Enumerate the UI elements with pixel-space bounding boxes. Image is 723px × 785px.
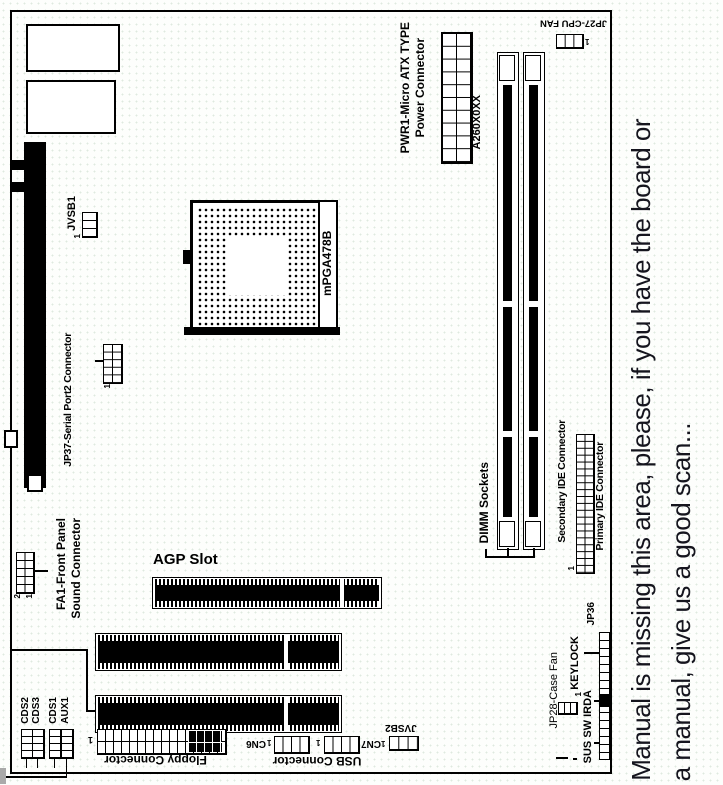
aux1-icon bbox=[61, 729, 74, 759]
cds-leader-line bbox=[26, 757, 27, 768]
dimm-key-notch bbox=[529, 431, 538, 437]
jp37-header-icon bbox=[103, 344, 123, 384]
scan-smudge bbox=[0, 768, 6, 784]
fa1-label-line1: FA1-Front Panel bbox=[55, 518, 69, 610]
usb-header-icon-2 bbox=[324, 736, 360, 754]
pci-leader-line bbox=[86, 649, 88, 712]
usb-header-icon-1 bbox=[274, 736, 310, 754]
dimm-clip bbox=[499, 521, 515, 547]
cds3-icon bbox=[32, 729, 45, 759]
pwr1-connector-icon bbox=[441, 32, 473, 164]
cn6-label: CN6 bbox=[246, 738, 266, 749]
pci-slot-1 bbox=[95, 633, 342, 671]
jvsb1-pin1-marker: 1 bbox=[73, 234, 82, 238]
cn7-label: CN7 bbox=[361, 738, 381, 749]
usb-pin1-marker: 1 bbox=[316, 737, 320, 746]
pwr1-type-label: PWR1-Micro ATX TYPE bbox=[399, 22, 413, 153]
agp-slot-label: AGP Slot bbox=[153, 551, 218, 568]
cds-leader-line bbox=[37, 757, 38, 768]
slot-key-notch bbox=[284, 697, 288, 731]
scanned-manual-page: JVSB1 1 JP37-Serial Port2 Connector 1 mP… bbox=[0, 0, 723, 785]
jp37-pin1-marker: 1 bbox=[103, 384, 112, 388]
dimm-leader-line bbox=[485, 556, 535, 558]
dimm-key-notch bbox=[503, 431, 512, 437]
dash-mark bbox=[556, 757, 568, 759]
edge-notch bbox=[4, 430, 18, 448]
aux-leader-line bbox=[4, 776, 67, 778]
slot-bar bbox=[155, 585, 379, 601]
usb-pin1-marker: 1 bbox=[267, 737, 271, 746]
pci-slot-2 bbox=[95, 695, 342, 733]
cpu-socket-center-hole bbox=[226, 238, 288, 295]
jvsb2-jumper-icon bbox=[389, 736, 419, 751]
rear-port-bottom bbox=[26, 80, 116, 134]
edge-tab bbox=[10, 160, 24, 170]
front-panel-strip-block bbox=[599, 694, 609, 707]
rear-port-top bbox=[26, 24, 120, 72]
cds2-label: CDS2 bbox=[20, 697, 32, 724]
slot-bar bbox=[98, 703, 339, 725]
rear-bar-notch bbox=[27, 474, 43, 492]
jvsb2-label: JVSB2 bbox=[385, 722, 417, 733]
sus-sw-irda-label: SUS SW IRDA bbox=[582, 690, 595, 763]
dimm-leader-line bbox=[533, 548, 535, 558]
jvsb1-label: JVSB1 bbox=[66, 196, 79, 231]
cds-leader-line bbox=[54, 757, 55, 768]
jp27-fan-icon bbox=[556, 34, 584, 49]
pwr1-name-label: Power Connector bbox=[414, 38, 428, 137]
jvsb1-jumper-icon bbox=[82, 212, 98, 238]
ide-header-icon bbox=[576, 434, 595, 574]
dimm-slot-1 bbox=[497, 52, 519, 550]
rear-connector-bar bbox=[24, 142, 46, 488]
jp36-label: JP36 bbox=[586, 602, 598, 625]
cds3-label: CDS3 bbox=[31, 697, 43, 724]
slot-teeth bbox=[155, 601, 379, 607]
missing-manual-note-line2: a manual, give us a good scan... bbox=[666, 423, 697, 781]
jp28-case-fan-label: JP28-Case Fan bbox=[548, 652, 561, 728]
jp37-label: JP37-Serial Port2 Connector bbox=[62, 333, 74, 467]
fa1-label-line2: Sound Connector bbox=[70, 518, 84, 619]
cpu-socket bbox=[190, 200, 324, 333]
aux-leader-line bbox=[66, 757, 67, 777]
fa1-leader-line bbox=[33, 570, 48, 572]
dimm-key-notch bbox=[529, 301, 538, 307]
primary-ide-label: Primary IDE Connector bbox=[594, 442, 606, 551]
agp-slot bbox=[152, 577, 382, 609]
slot-key-notch bbox=[284, 635, 288, 669]
jp27-cpu-fan-label: JP27-CPU FAN bbox=[543, 17, 607, 27]
jp27-pin1-marker: 1 bbox=[585, 36, 589, 45]
floppy-header-dark-cells bbox=[188, 730, 222, 752]
dimm-slot-2 bbox=[523, 52, 545, 550]
keylock-label: KEYLOCK bbox=[569, 636, 582, 690]
secondary-ide-label: Secondary IDE Connector bbox=[556, 420, 568, 543]
cpu-socket-side-tab bbox=[183, 250, 191, 264]
slot-key-notch bbox=[340, 579, 344, 607]
dimm-clip bbox=[525, 521, 541, 547]
missing-manual-note-line1: Manual is missing this area, please, if … bbox=[626, 119, 657, 781]
pci-leader-line bbox=[12, 649, 86, 651]
floppy-label: Floppy Connector bbox=[98, 753, 213, 766]
dimm-sockets-label: DIMM Sockets bbox=[478, 462, 492, 543]
usb-connector-label: USB Connector bbox=[272, 754, 362, 767]
edge-tab bbox=[10, 182, 24, 192]
keylock-leader-line bbox=[584, 652, 600, 654]
fa1-pin2-marker: 2 bbox=[13, 594, 22, 598]
jvsb2-pin1-marker: 1 bbox=[381, 738, 385, 747]
dimm-leader-line bbox=[507, 548, 509, 558]
jp37-leader-line bbox=[95, 360, 103, 362]
ide-pin1-marker: 1 bbox=[567, 566, 576, 570]
fa1-header-icon bbox=[16, 552, 35, 594]
cpu-socket-lever-bar bbox=[184, 327, 340, 335]
slot-teeth bbox=[98, 663, 339, 669]
fa1-pin1-marker: 1 bbox=[25, 594, 34, 598]
pci-leader-line bbox=[86, 710, 95, 712]
cpu-socket-label: mPGA478B bbox=[321, 202, 333, 325]
pwr1-part-number: A260X0XX bbox=[471, 95, 484, 149]
aux1-label: AUX1 bbox=[60, 697, 72, 724]
cds1-label: CDS1 bbox=[48, 697, 60, 724]
slot-bar bbox=[98, 641, 339, 663]
cpu-socket-band: mPGA478B bbox=[318, 200, 338, 331]
jp28-fan-icon bbox=[558, 702, 578, 715]
dash-mark bbox=[573, 758, 577, 760]
floppy-pin1-marker: 1 bbox=[88, 734, 93, 744]
dimm-clip bbox=[525, 55, 541, 81]
dimm-key-notch bbox=[503, 301, 512, 307]
dimm-clip bbox=[499, 55, 515, 81]
